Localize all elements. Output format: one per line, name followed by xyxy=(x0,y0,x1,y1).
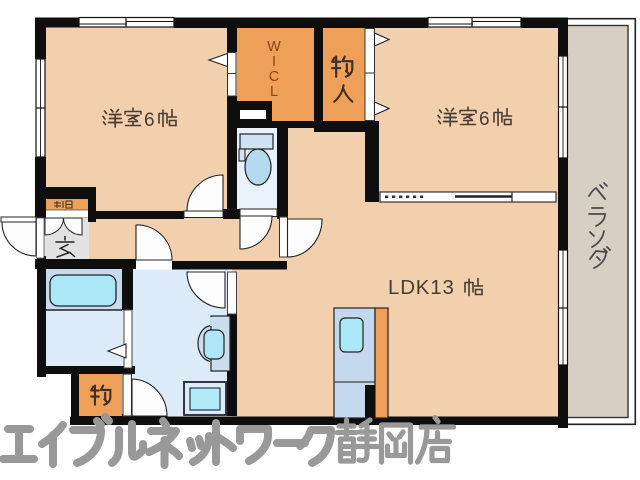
svg-text:C: C xyxy=(269,69,279,85)
svg-text:W: W xyxy=(267,39,281,55)
svg-text:I: I xyxy=(272,54,276,70)
svg-text:6: 6 xyxy=(479,109,490,130)
svg-text:L: L xyxy=(270,84,278,100)
svg-text:6: 6 xyxy=(144,110,155,131)
svg-text:LDK13: LDK13 xyxy=(388,276,455,299)
